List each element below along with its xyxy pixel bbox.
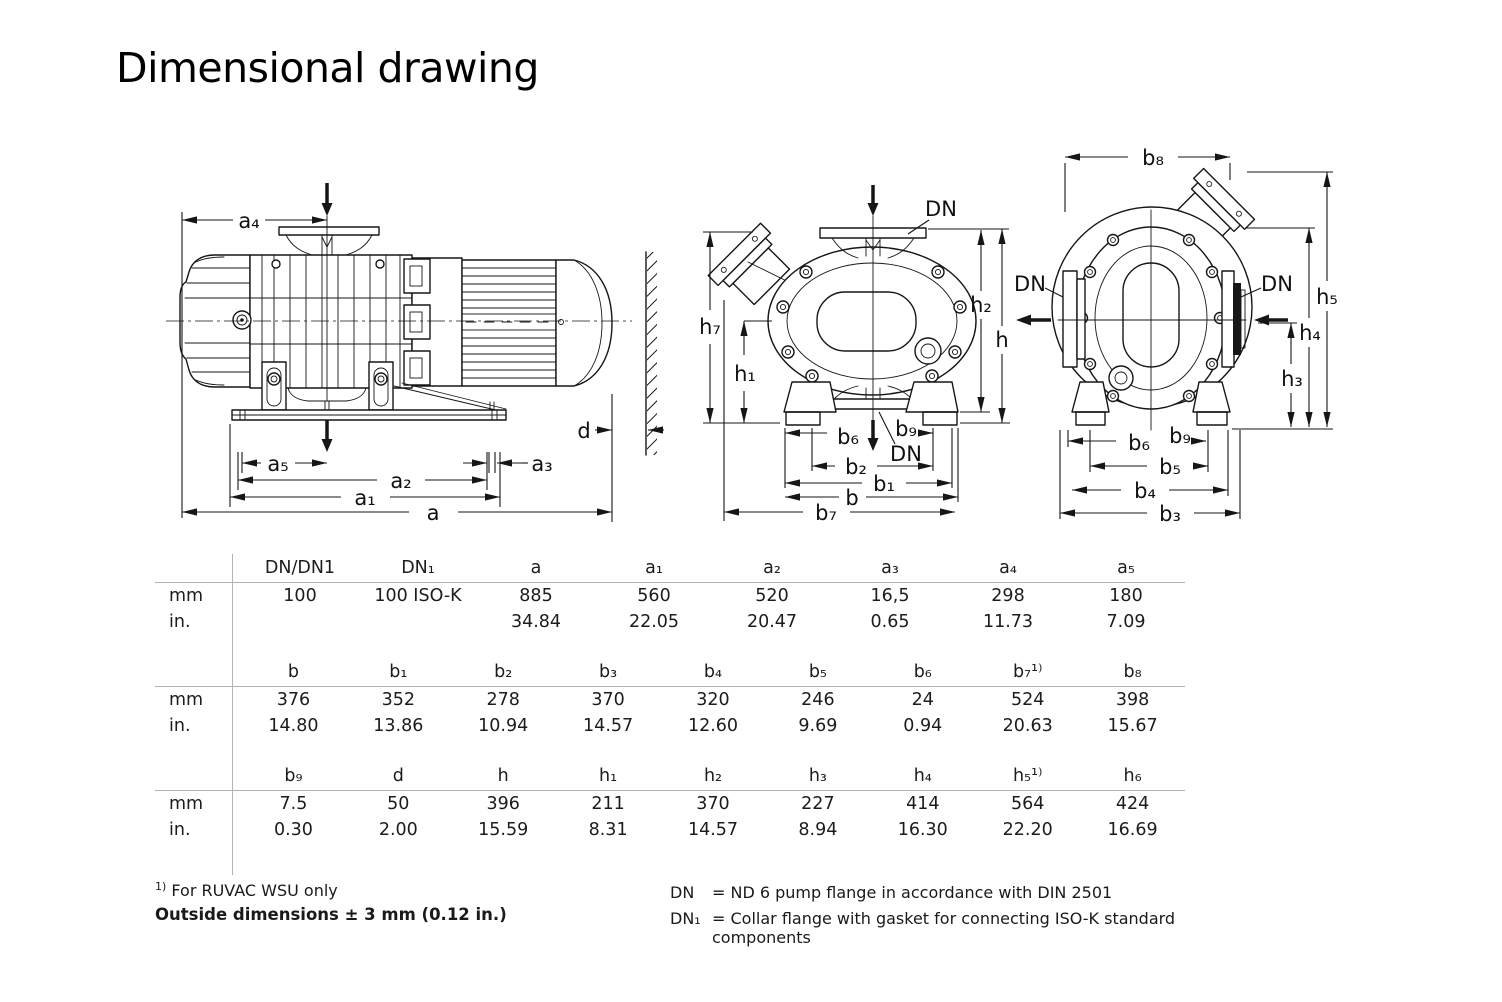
dim-label-b6: b₆ (837, 425, 859, 449)
header-cell: h₅¹⁾ (975, 766, 1080, 786)
header-cell: d (346, 766, 451, 786)
header-cell: a₅ (1067, 558, 1185, 578)
dn-label-bottom: DN (890, 442, 922, 466)
header-cell: h₄ (870, 766, 975, 786)
value-cell: 22.20 (975, 820, 1080, 840)
dim-label-h: h (995, 328, 1008, 352)
dim-label-a: a (427, 501, 440, 525)
value-cell: 13.86 (346, 716, 451, 736)
dim-label-b9-rear: b₉ (1169, 424, 1191, 448)
unit-label: in. (155, 612, 241, 632)
value-cell: 520 (713, 586, 831, 606)
dn-label-right: DN (1261, 272, 1293, 296)
value-cell: 352 (346, 690, 451, 710)
value-cell: 246 (765, 690, 870, 710)
value-cell: 278 (451, 690, 556, 710)
table-row-mm: mm 376 352 278 370 320 246 24 524 398 (155, 687, 1185, 713)
value-cell: 211 (556, 794, 661, 814)
collar-gasket (1233, 283, 1241, 355)
dim-label-b9: b₉ (895, 417, 917, 441)
value-cell: 0.94 (870, 716, 975, 736)
value-cell: 424 (1080, 794, 1185, 814)
header-cell: a (477, 558, 595, 578)
dim-label-b6-rear: b₆ (1128, 431, 1150, 455)
value-cell: 50 (346, 794, 451, 814)
dn-definition: DN = ND 6 pump flange in accordance with… (670, 883, 1230, 902)
dn1-def: = Collar flange with gasket for connecti… (712, 909, 1230, 947)
value-cell: 100 ISO-K (359, 586, 477, 606)
value-cell: 2.00 (346, 820, 451, 840)
dn-label-left: DN (1014, 272, 1046, 296)
dim-label-h4: h₄ (1299, 321, 1321, 345)
footnote-ruvac: 1) For RUVAC WSU only (155, 880, 338, 900)
table-header-row: b b₁ b₂ b₃ b₄ b₅ b₆ b₇¹⁾ b₈ (155, 656, 1185, 687)
value-cell: 8.31 (556, 820, 661, 840)
dn-def: = ND 6 pump flange in accordance with DI… (712, 883, 1230, 902)
value-cell: 320 (661, 690, 766, 710)
value-cell: 227 (765, 794, 870, 814)
unit-label: in. (155, 716, 241, 736)
dim-label-a1: a₁ (354, 486, 375, 510)
view-front: DN DN h₇ h₁ h₂ h b₆ b₉ b₂ b₁ (699, 185, 1010, 525)
value-cell: 7.09 (1067, 612, 1185, 632)
value-cell: 396 (451, 794, 556, 814)
dimension-table-b: b b₁ b₂ b₃ b₄ b₅ b₆ b₇¹⁾ b₈ mm 376 352 2… (155, 656, 1185, 739)
value-cell: 15.67 (1080, 716, 1185, 736)
table-row-mm: mm 100 100 ISO-K 885 560 520 16,5 298 18… (155, 583, 1185, 609)
dim-label-h1: h₁ (734, 362, 756, 386)
value-cell: 7.5 (241, 794, 346, 814)
value-cell: 180 (1067, 586, 1185, 606)
value-cell: 8.94 (765, 820, 870, 840)
unit-label: mm (155, 690, 241, 710)
outlet-arrow (322, 439, 333, 452)
header-cell: b (241, 662, 346, 682)
header-cell: b₅ (765, 662, 870, 682)
dim-label-d: d (577, 419, 590, 443)
header-cell: a₃ (831, 558, 949, 578)
dim-label-h7: h₇ (699, 315, 721, 339)
header-cell: h₂ (661, 766, 766, 786)
dim-label-a4: a₄ (238, 209, 259, 233)
footnote-dn-legend: DN = ND 6 pump flange in accordance with… (670, 883, 1230, 947)
value-cell: 370 (661, 794, 766, 814)
inlet-arrow (322, 203, 333, 216)
table-row-in: in. 0.30 2.00 15.59 8.31 14.57 8.94 16.3… (155, 817, 1185, 843)
header-cell: h₃ (765, 766, 870, 786)
header-cell: b₇¹⁾ (975, 662, 1080, 682)
dim-label-a2: a₂ (390, 469, 411, 493)
unit-label: in. (155, 820, 241, 840)
value-cell: 34.84 (477, 612, 595, 632)
header-cell: b₂ (451, 662, 556, 682)
view-side: a₄ a₅ a₂ a₁ a a₃ d (166, 183, 664, 525)
footnote-marker: 1) (155, 880, 166, 893)
header-cell: b₈ (1080, 662, 1185, 682)
value-cell: 0.30 (241, 820, 346, 840)
value-cell: 11.73 (949, 612, 1067, 632)
table-row-in: in. 34.84 22.05 20.47 0.65 11.73 7.09 (155, 609, 1185, 635)
page-title: Dimensional drawing (116, 44, 539, 92)
dim-label-b4: b₄ (1134, 479, 1156, 503)
value-cell: 9.69 (765, 716, 870, 736)
table-header-row: DN/DN1 DN₁ a a₁ a₂ a₃ a₄ a₅ (155, 552, 1185, 583)
unit-label: mm (155, 794, 241, 814)
header-cell: h₆ (1080, 766, 1185, 786)
unit-label: mm (155, 586, 241, 606)
dim-label-h2: h₂ (970, 293, 992, 317)
value-cell: 12.60 (661, 716, 766, 736)
table-row-mm: mm 7.5 50 396 211 370 227 414 564 424 (155, 791, 1185, 817)
value-cell: 370 (556, 690, 661, 710)
value-cell: 414 (870, 794, 975, 814)
dn-label-top: DN (925, 197, 957, 221)
value-cell: 16.30 (870, 820, 975, 840)
value-cell: 14.57 (661, 820, 766, 840)
header-cell: DN/DN1 (241, 558, 359, 578)
table-row-in: in. 14.80 13.86 10.94 14.57 12.60 9.69 0… (155, 713, 1185, 739)
view-rear: DN DN b₈ h₅ h₄ h₃ b₆ b₉ b₅ b₄ (1014, 146, 1338, 526)
dim-label-b5: b₅ (1159, 455, 1181, 479)
header-cell: b₆ (870, 662, 975, 682)
value-cell: 15.59 (451, 820, 556, 840)
header-cell: h₁ (556, 766, 661, 786)
dim-label-b7: b₇ (815, 501, 837, 525)
value-cell: 22.05 (595, 612, 713, 632)
dim-label-b2: b₂ (845, 455, 867, 479)
dim-label-b1: b₁ (873, 472, 895, 496)
value-cell: 298 (949, 586, 1067, 606)
header-cell: a₂ (713, 558, 831, 578)
header-cell: DN₁ (359, 558, 477, 578)
value-cell: 24 (870, 690, 975, 710)
value-cell: 398 (1080, 690, 1185, 710)
dn1-term: DN₁ (670, 909, 712, 947)
dn-term: DN (670, 883, 712, 902)
dim-label-b8: b₈ (1142, 146, 1164, 170)
header-cell: b₉ (241, 766, 346, 786)
value-cell: 16.69 (1080, 820, 1185, 840)
value-cell: 524 (975, 690, 1080, 710)
footnote-tolerance: Outside dimensions ± 3 mm (0.12 in.) (155, 905, 507, 924)
dim-label-h3: h₃ (1281, 367, 1303, 391)
header-cell: a₁ (595, 558, 713, 578)
dim-label-a5: a₅ (267, 452, 288, 476)
header-cell: b₄ (661, 662, 766, 682)
dimensional-drawing: a₄ a₅ a₂ a₁ a a₃ d (140, 130, 1480, 550)
value-cell: 0.65 (831, 612, 949, 632)
dn1-definition: DN₁ = Collar flange with gasket for conn… (670, 909, 1230, 947)
value-cell: 564 (975, 794, 1080, 814)
table-header-row: b₉ d h h₁ h₂ h₃ h₄ h₅¹⁾ h₆ (155, 760, 1185, 791)
dim-label-b3: b₃ (1159, 502, 1181, 526)
value-cell: 560 (595, 586, 713, 606)
header-cell: b₁ (346, 662, 451, 682)
dim-label-a3: a₃ (531, 452, 552, 476)
dimension-table-h: b₉ d h h₁ h₂ h₃ h₄ h₅¹⁾ h₆ mm 7.5 50 396… (155, 760, 1185, 843)
header-cell: h (451, 766, 556, 786)
value-cell: 20.47 (713, 612, 831, 632)
dim-label-h5: h₅ (1316, 285, 1338, 309)
dimension-table-a: DN/DN1 DN₁ a a₁ a₂ a₃ a₄ a₅ mm 100 100 I… (155, 552, 1185, 635)
value-cell: 10.94 (451, 716, 556, 736)
value-cell: 100 (241, 586, 359, 606)
value-cell: 14.80 (241, 716, 346, 736)
dim-label-b: b (845, 486, 858, 510)
value-cell: 885 (477, 586, 595, 606)
header-cell: b₃ (556, 662, 661, 682)
value-cell: 20.63 (975, 716, 1080, 736)
header-cell: a₄ (949, 558, 1067, 578)
footnote-text: For RUVAC WSU only (171, 881, 337, 900)
value-cell: 16,5 (831, 586, 949, 606)
value-cell: 14.57 (556, 716, 661, 736)
value-cell: 376 (241, 690, 346, 710)
